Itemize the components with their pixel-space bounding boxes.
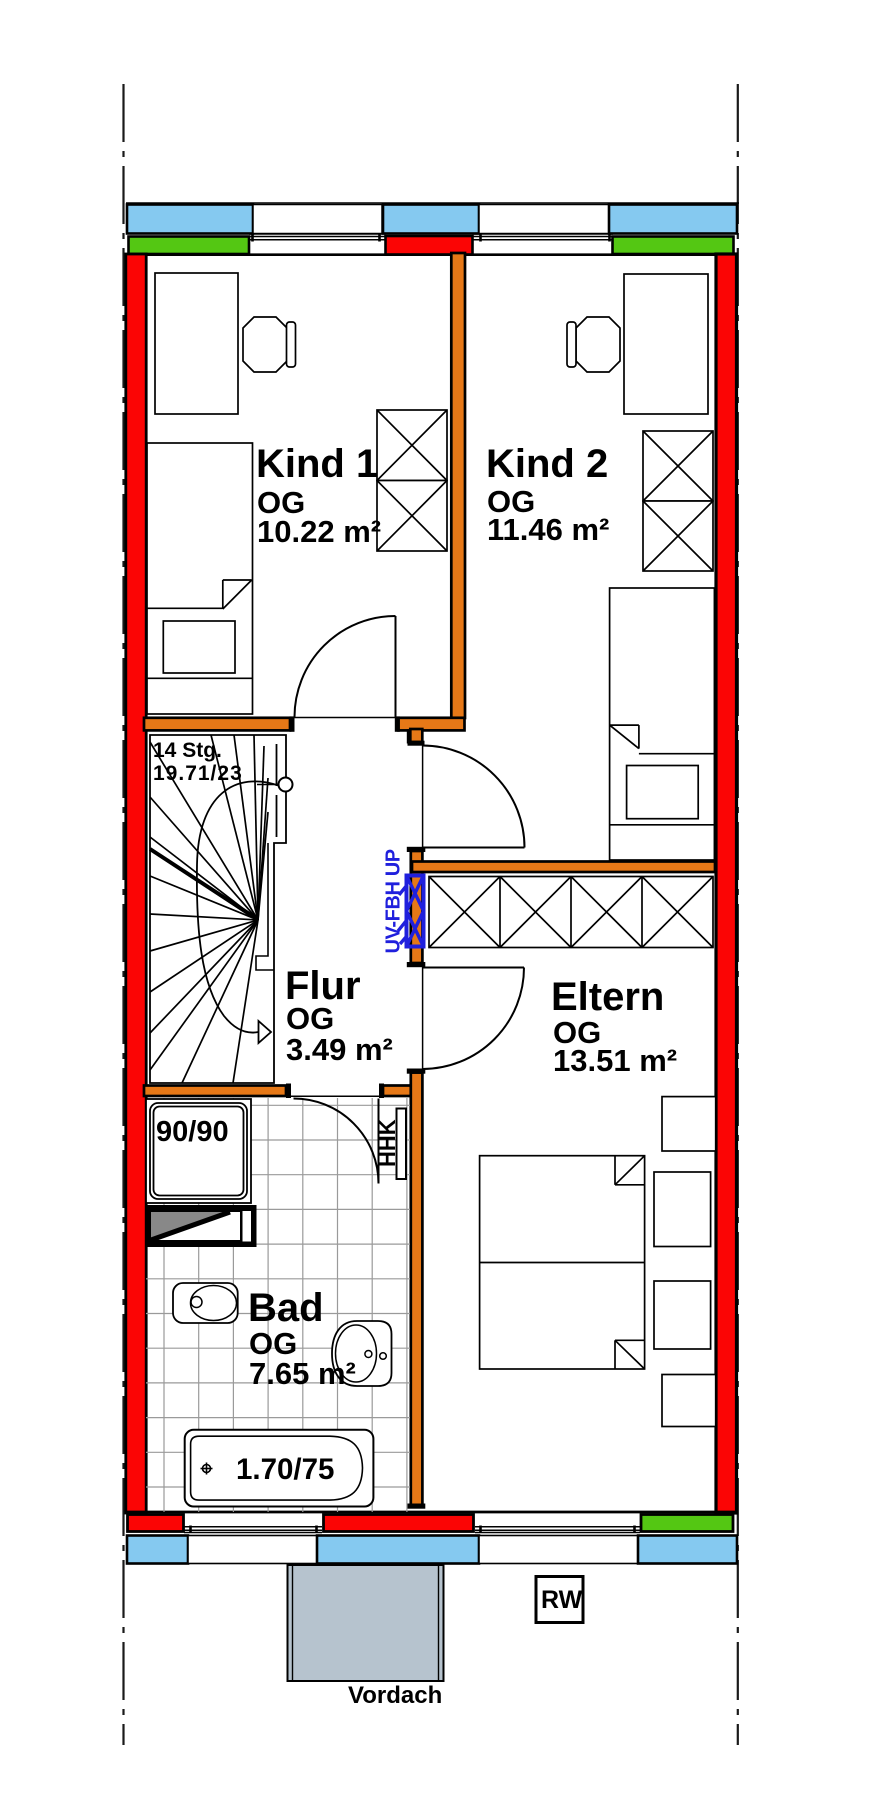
svg-text:Kind 2: Kind 2	[486, 442, 608, 486]
svg-text:Vordach: Vordach	[348, 1682, 442, 1709]
svg-text:RW: RW	[541, 1586, 583, 1614]
svg-text:90/90: 90/90	[156, 1116, 229, 1148]
svg-text:Eltern: Eltern	[551, 975, 664, 1019]
svg-text:Kind 1: Kind 1	[256, 442, 378, 486]
svg-text:7.65 m²: 7.65 m²	[249, 1356, 356, 1391]
svg-text:11.46 m²: 11.46 m²	[487, 512, 609, 547]
svg-text:3.49 m²: 3.49 m²	[286, 1032, 393, 1067]
svg-text:19.71/23: 19.71/23	[153, 762, 243, 785]
svg-text:13.51 m²: 13.51 m²	[553, 1043, 677, 1078]
svg-text:OG: OG	[286, 1001, 334, 1036]
svg-text:14 Stg.: 14 Stg.	[153, 739, 222, 762]
svg-text:UV-FBH UP: UV-FBH UP	[383, 849, 405, 953]
svg-text:Bad: Bad	[248, 1286, 324, 1330]
svg-text:10.22 m²: 10.22 m²	[257, 514, 381, 549]
svg-text:1.70/75: 1.70/75	[236, 1453, 334, 1486]
